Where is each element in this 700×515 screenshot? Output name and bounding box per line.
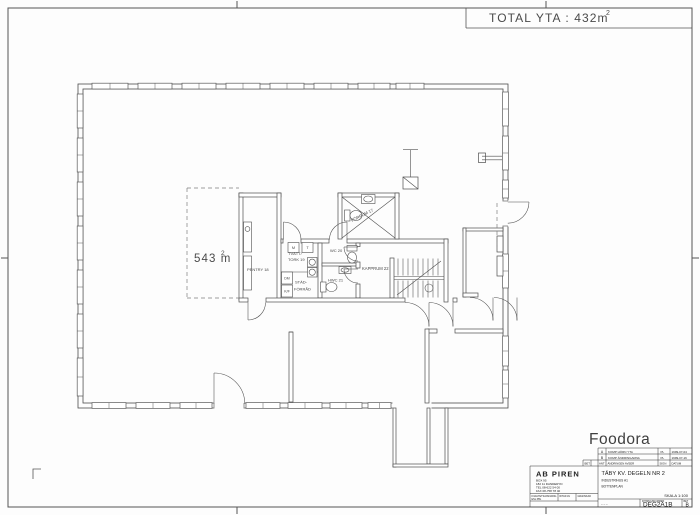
client-name: Foodora [589,431,650,448]
company-cell1b: ENL PBL [532,498,542,501]
room-label-pentry: PENTRY 18 [247,267,269,272]
room-label-tvatt-2: TORK 19 [288,257,305,262]
corner-mark [33,469,41,479]
rev-b-sign: PL [661,456,665,460]
rev-b-desc: KOMP ÄNDRINGARNA [608,456,640,460]
room-label-stad-1: STÄD- [295,280,308,285]
rev-a-letter: A [601,450,604,454]
project-sub1: INDUSTRIHUS A1 [602,479,629,483]
total-area-label: TOTAL YTA : 432m [489,11,609,25]
bet-value: B [686,503,690,509]
drawing-number: DEG2A1B [643,502,672,509]
company-cell3: GRANSKAD [578,495,592,498]
rev-a-sign: PL [661,450,665,454]
rev-a-desc: KOMP HÖRN YTA [608,450,633,454]
room-label-stad-2: FÖRRÅD [294,287,311,292]
room-label-wc: WC 20 [330,248,343,253]
project-title: TÄBY KV. DEGELN NR 2 [602,470,665,477]
rev-header-sign: SIGN [660,462,667,466]
rev-header-date: DATUM [672,462,682,466]
cabinet-label-dm: DM [284,277,290,281]
area-label-543-sup: 2 [221,250,226,257]
project-scale: SKALA 1:100 [664,493,689,498]
rev-header-desc: ÄNDRINGEN AVSER [608,462,635,466]
company-name: AB PIREN [536,470,580,479]
area-label-543: 543 m [194,253,231,265]
rev-b-date: 1999-07-16 [672,456,688,460]
floor-plan-canvas: TOTAL YTA : 432m 2 [0,0,700,515]
plumbing-fixtures [244,195,376,298]
project-sub2: BOTTENPLAN [602,485,624,489]
room-label-hwc: HWC 21 [328,278,344,283]
cabinet-label-kf: K/F [284,290,290,294]
rev-b-letter: B [601,456,604,460]
drawing-page: TOTAL YTA : 432m 2 [0,0,700,515]
door-swings [214,202,529,404]
company-cell2: RITAD AV [560,495,571,498]
total-area-sup: 2 [606,10,611,17]
staircase [394,259,444,298]
company-line4: FAX 08-758 78 40 [536,489,561,493]
room-label-kapprum: KAPPRUM 22 [362,266,389,271]
room-label-tvatt-1: TVÄTT/ [288,251,303,256]
rev-a-date: 1999-07-04 [672,450,688,454]
rev-header-ant: ANT [599,462,605,466]
cabinet-label-m: M [292,246,295,250]
project-marks: – – – [601,502,608,506]
rev-header-bet: BET [585,462,591,466]
